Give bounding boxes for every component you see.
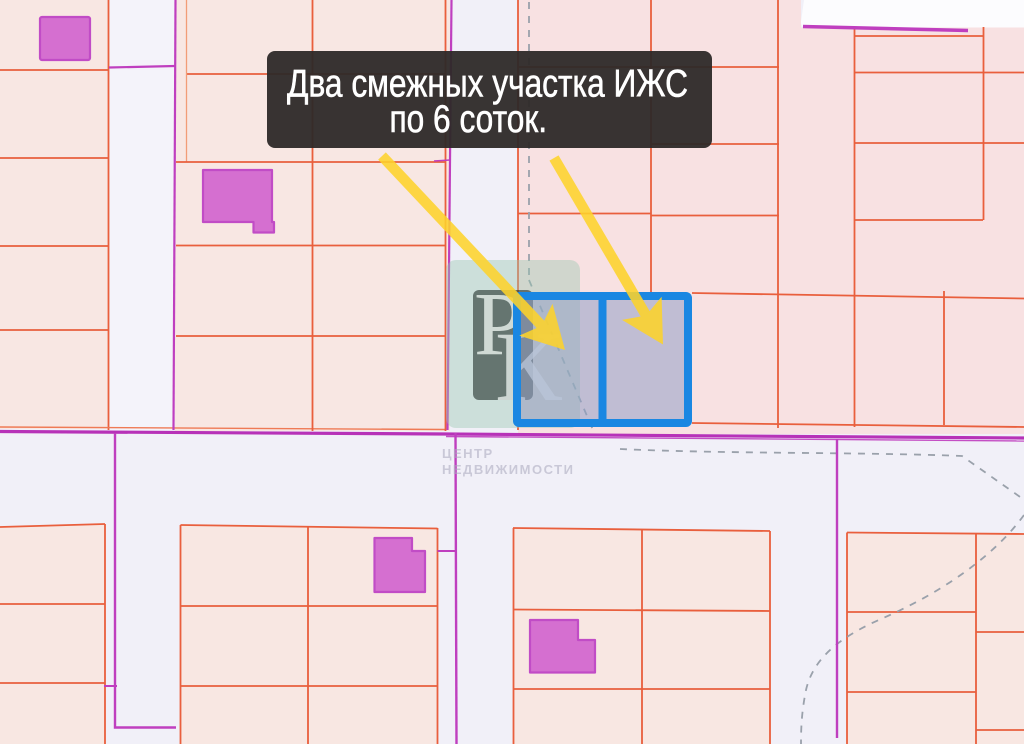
svg-text:НЕДВИЖИМОСТИ: НЕДВИЖИМОСТИ (442, 462, 574, 477)
svg-text:ЦЕНТР: ЦЕНТР (442, 446, 494, 461)
svg-text:по 6 соток.: по 6 соток. (390, 98, 548, 141)
